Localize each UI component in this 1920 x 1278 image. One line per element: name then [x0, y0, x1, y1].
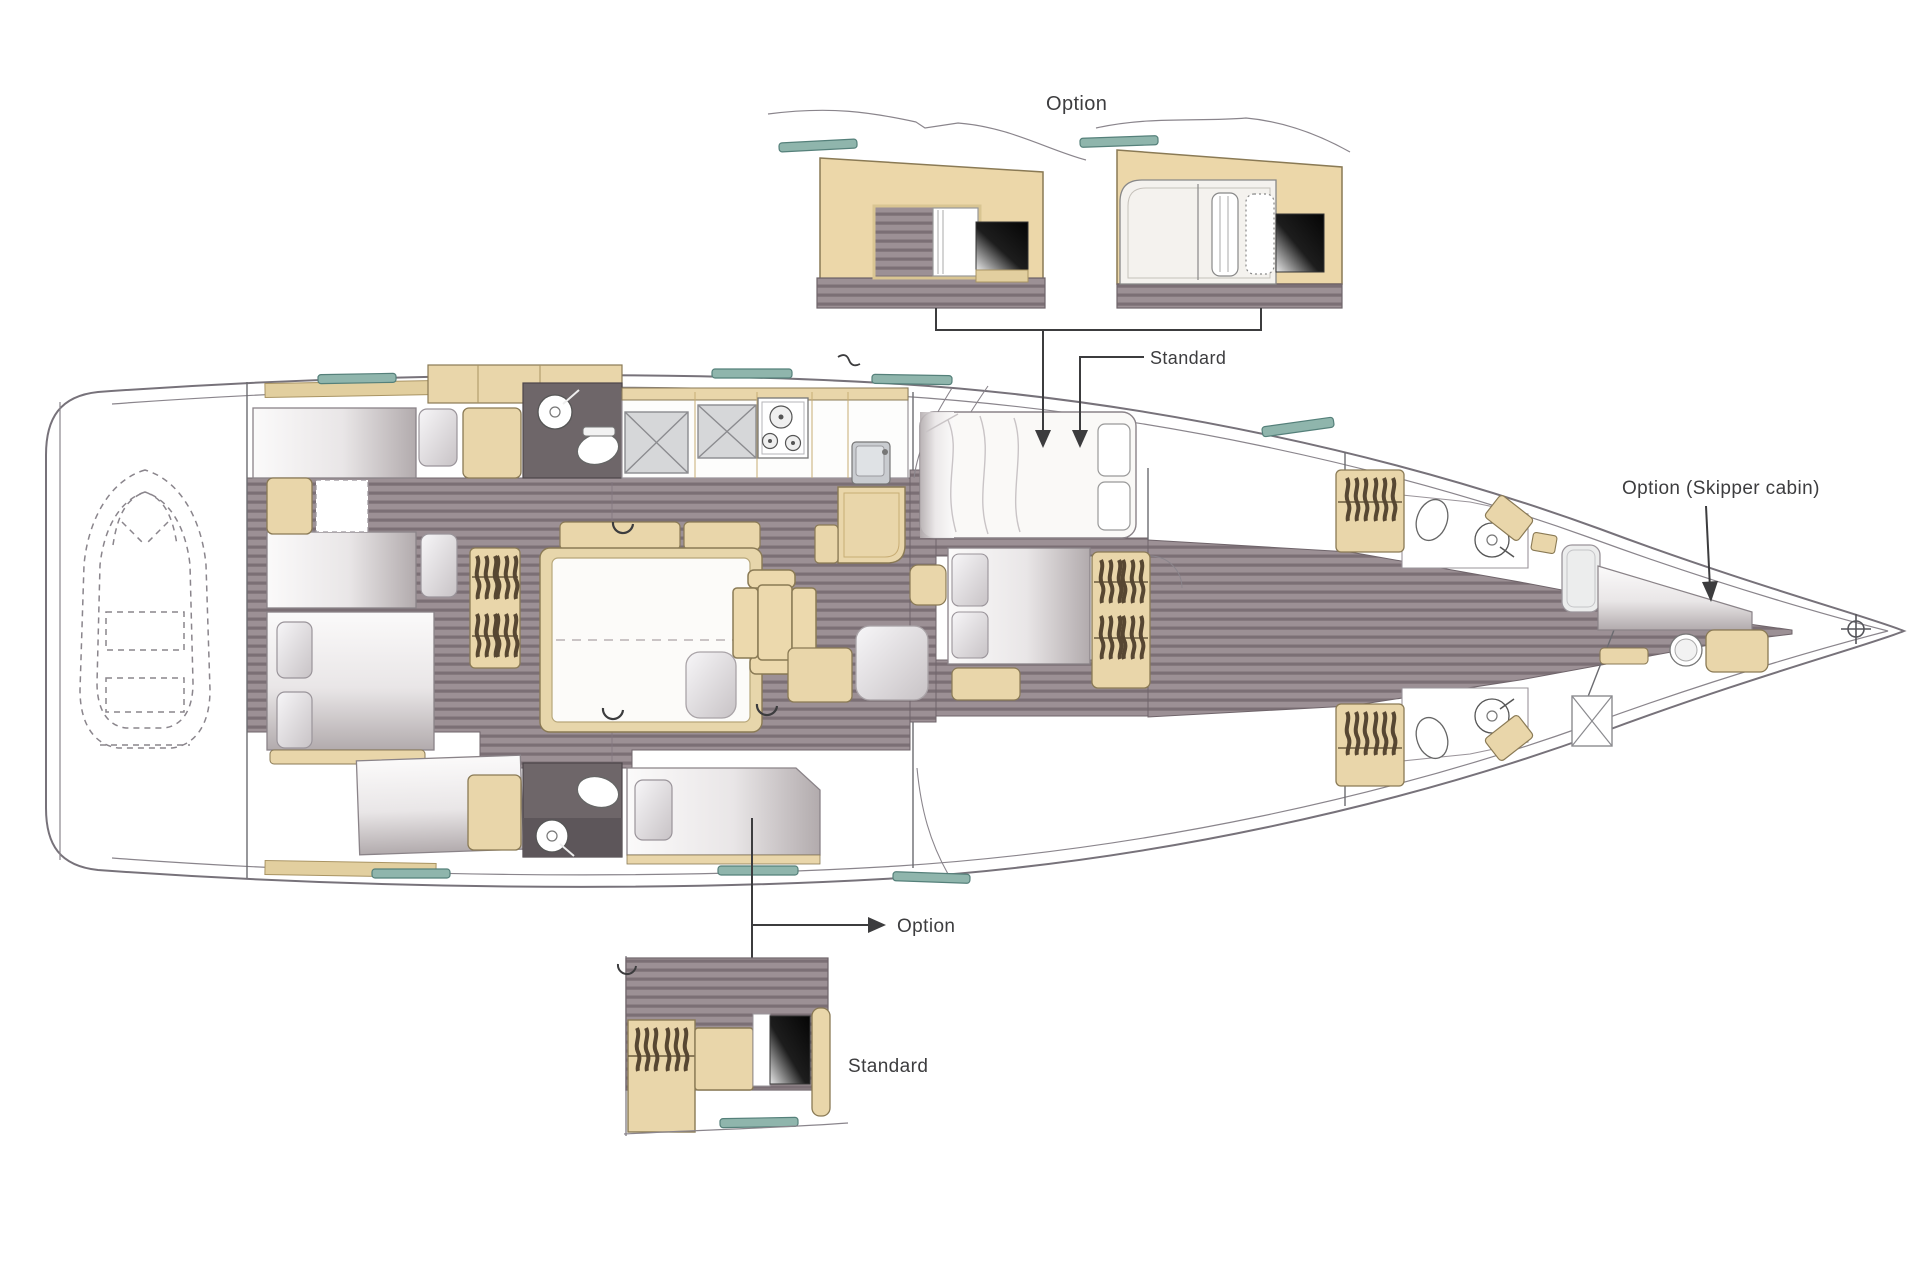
- wardrobe-starboard: [1092, 552, 1150, 688]
- stove-icon: [758, 398, 808, 458]
- salon-seat: [686, 652, 736, 718]
- shelf: [952, 668, 1020, 700]
- pillow-hatch: [419, 409, 457, 466]
- pillow: [635, 780, 672, 840]
- deck-hatch-teal: [1080, 136, 1158, 148]
- bedside-step: [910, 565, 946, 605]
- infill-cabinet: [267, 478, 312, 534]
- berth: [253, 408, 416, 478]
- vanity: [463, 408, 521, 478]
- berth-sill: [627, 855, 820, 864]
- label-bottom-option: Option: [897, 916, 955, 937]
- yacht-layout-diagram: Option Standard Option (Skipper cabin) O…: [0, 0, 1920, 1278]
- desk: [933, 208, 978, 276]
- pillow: [1098, 424, 1130, 476]
- deck-hatch-teal: [779, 139, 857, 152]
- deck-context-lines: [768, 110, 1350, 160]
- inset-option-bed: [1117, 150, 1342, 308]
- glossy-surface: [976, 222, 1028, 270]
- panel: [812, 1008, 830, 1116]
- pillow-dotted: [1246, 194, 1274, 274]
- inset-standard: [618, 956, 848, 1136]
- pillow: [1098, 482, 1130, 530]
- label-top-standard: Standard: [1150, 348, 1226, 368]
- pillow-hatch: [277, 622, 312, 678]
- floorplan-svg: Option Standard Option (Skipper cabin) O…: [0, 0, 1920, 1278]
- sink-icon: [852, 442, 890, 484]
- berth: [267, 532, 416, 608]
- salon-head-cabinet: [684, 522, 760, 550]
- pillow: [952, 612, 988, 658]
- vanity: [468, 775, 521, 850]
- salon-side-table: [788, 648, 852, 702]
- doorway-glossy: [770, 1016, 810, 1084]
- salon-seat: [856, 626, 928, 700]
- salon-head-cabinet: [560, 522, 680, 550]
- wardrobe-forward-starboard: [1336, 704, 1404, 786]
- locker-small: [1531, 532, 1558, 554]
- locker-hatch-x: [1572, 696, 1612, 746]
- label-top-option: Option: [1046, 93, 1107, 115]
- locker-small: [1600, 648, 1648, 664]
- aft-head-starboard: [468, 763, 622, 857]
- wardrobe: [628, 1020, 695, 1132]
- pillow-hatch: [421, 534, 457, 597]
- glossy-surface: [1276, 214, 1324, 272]
- infill-panel-dashed: [316, 480, 368, 532]
- wardrobe-port: [470, 548, 520, 668]
- pillow: [952, 554, 988, 606]
- starboard-berth: [627, 768, 820, 864]
- pillow-hatch: [277, 692, 312, 748]
- label-skipper-option: Option (Skipper cabin): [1622, 478, 1820, 499]
- wardrobe-forward-port: [1336, 470, 1404, 552]
- inset-option-desk: [817, 158, 1045, 308]
- arrow-right-icon: [868, 917, 886, 933]
- label-bottom-standard: Standard: [848, 1056, 928, 1077]
- desk-seat: [695, 1028, 753, 1090]
- pillow: [1212, 193, 1238, 276]
- bow-locker: [1706, 630, 1768, 672]
